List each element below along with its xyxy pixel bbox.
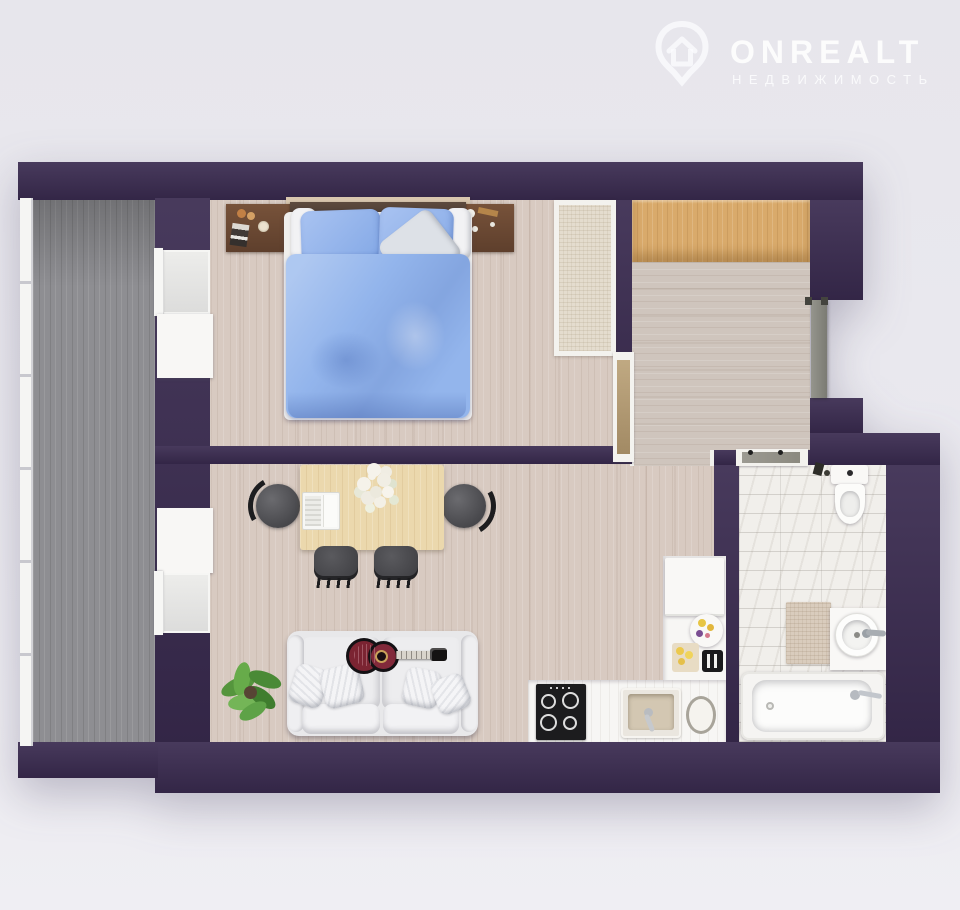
door-stopper bbox=[824, 470, 830, 476]
wall bbox=[886, 465, 940, 742]
duvet-fold bbox=[288, 392, 466, 418]
fruit bbox=[705, 633, 710, 638]
cutting-board bbox=[686, 696, 716, 734]
bedroom-rug bbox=[554, 200, 616, 356]
brand-name: ONREALT bbox=[730, 34, 924, 71]
cooktop-burner bbox=[563, 716, 577, 730]
lemon bbox=[685, 651, 693, 659]
potted-plant bbox=[220, 660, 286, 730]
wall bbox=[155, 446, 632, 464]
wardrobe bbox=[632, 200, 810, 262]
toaster-slot bbox=[707, 654, 710, 668]
living-balcony-window-sill bbox=[157, 508, 213, 573]
hallway-living-opening bbox=[630, 450, 714, 466]
cooktop-burner bbox=[562, 692, 579, 709]
living-balcony-window-glass bbox=[162, 573, 210, 633]
apartment-plan bbox=[0, 0, 960, 910]
entry-door-handle bbox=[821, 297, 828, 305]
duvet-fold bbox=[372, 286, 458, 386]
toilet-flush-button bbox=[847, 470, 853, 476]
flower-centerpiece bbox=[368, 472, 376, 480]
toaster bbox=[702, 650, 723, 672]
onrealt-logo: ONREALT НЕДВИЖИМОСТЬ bbox=[652, 14, 952, 100]
cooktop-controls bbox=[550, 687, 572, 689]
wall bbox=[18, 742, 158, 778]
fruit bbox=[698, 619, 706, 627]
sink-drain bbox=[854, 632, 860, 638]
brand-tagline: НЕДВИЖИМОСТЬ bbox=[732, 72, 935, 87]
window-rail bbox=[154, 248, 163, 316]
wall bbox=[18, 162, 863, 200]
laptop-keyboard bbox=[305, 496, 321, 526]
fruit bbox=[707, 624, 714, 631]
bath-mat bbox=[786, 602, 831, 664]
plant-pot bbox=[244, 686, 257, 699]
entry-door-handle bbox=[805, 297, 812, 305]
door-hinge bbox=[778, 450, 783, 455]
guitar-headstock bbox=[430, 648, 447, 661]
nightstand-decor bbox=[472, 226, 478, 232]
cooktop-burner bbox=[540, 714, 557, 731]
fruit bbox=[696, 630, 703, 637]
dining-chair bbox=[314, 546, 358, 580]
wall bbox=[810, 398, 863, 433]
bedroom-balcony-window-sill bbox=[157, 314, 213, 378]
nightstand-decor bbox=[247, 212, 255, 220]
toilet-seat bbox=[840, 491, 860, 517]
dining-chair bbox=[374, 546, 418, 580]
guitar-sound-hole bbox=[375, 650, 388, 663]
dining-chair bbox=[256, 484, 300, 528]
balcony-window-left bbox=[20, 198, 33, 746]
book-stack bbox=[230, 223, 250, 247]
laptop-lid bbox=[323, 495, 337, 527]
wall bbox=[810, 200, 863, 300]
fridge bbox=[665, 558, 724, 616]
chair-legs bbox=[376, 578, 415, 588]
balcony-floor bbox=[33, 200, 155, 744]
candle bbox=[258, 221, 269, 232]
window-rail bbox=[154, 571, 163, 635]
lemon bbox=[678, 658, 685, 665]
lemon bbox=[676, 647, 684, 655]
cooktop-burner bbox=[541, 694, 556, 709]
entry-door bbox=[811, 300, 827, 398]
cooktop bbox=[536, 684, 586, 740]
guitar-neck bbox=[396, 651, 432, 659]
nightstand-decor bbox=[490, 222, 495, 227]
toaster-slot bbox=[714, 654, 717, 668]
floorplan-render: ONREALT НЕДВИЖИМОСТЬ bbox=[0, 0, 960, 910]
bathtub-drain bbox=[766, 702, 774, 710]
door-hinge bbox=[748, 450, 753, 455]
nightstand-decor bbox=[237, 209, 246, 218]
house-pin-icon bbox=[654, 20, 710, 90]
dining-chair bbox=[442, 484, 486, 528]
chair-legs bbox=[316, 578, 355, 588]
bedroom-balcony-window-glass bbox=[162, 250, 210, 314]
wall bbox=[155, 742, 940, 793]
sofa-seat-cushion bbox=[302, 704, 380, 734]
wall bbox=[810, 433, 940, 465]
bedroom-door bbox=[617, 360, 630, 454]
